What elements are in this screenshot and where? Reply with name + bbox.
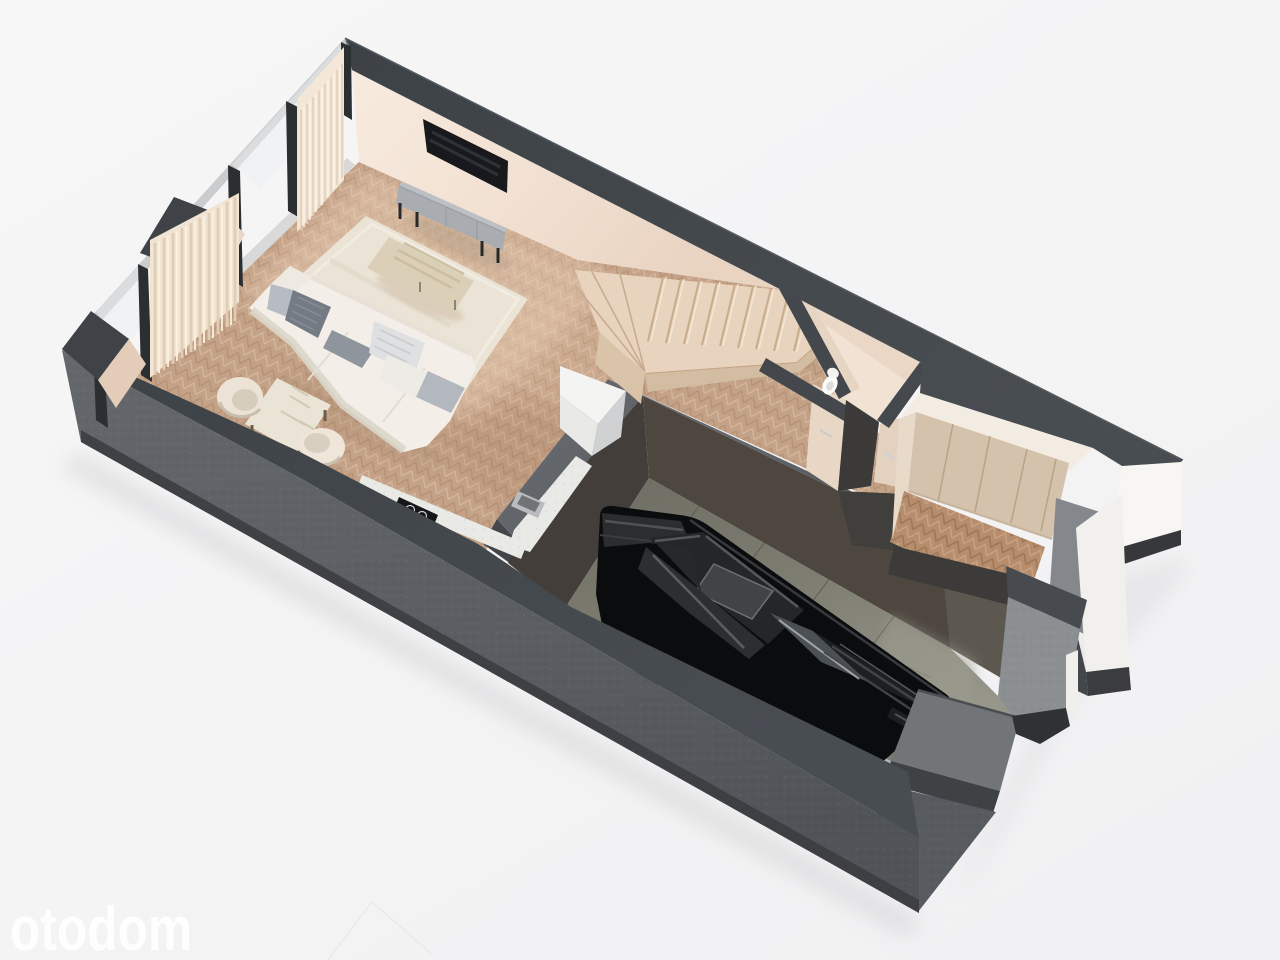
svg-text:otodom: otodom bbox=[10, 895, 192, 960]
